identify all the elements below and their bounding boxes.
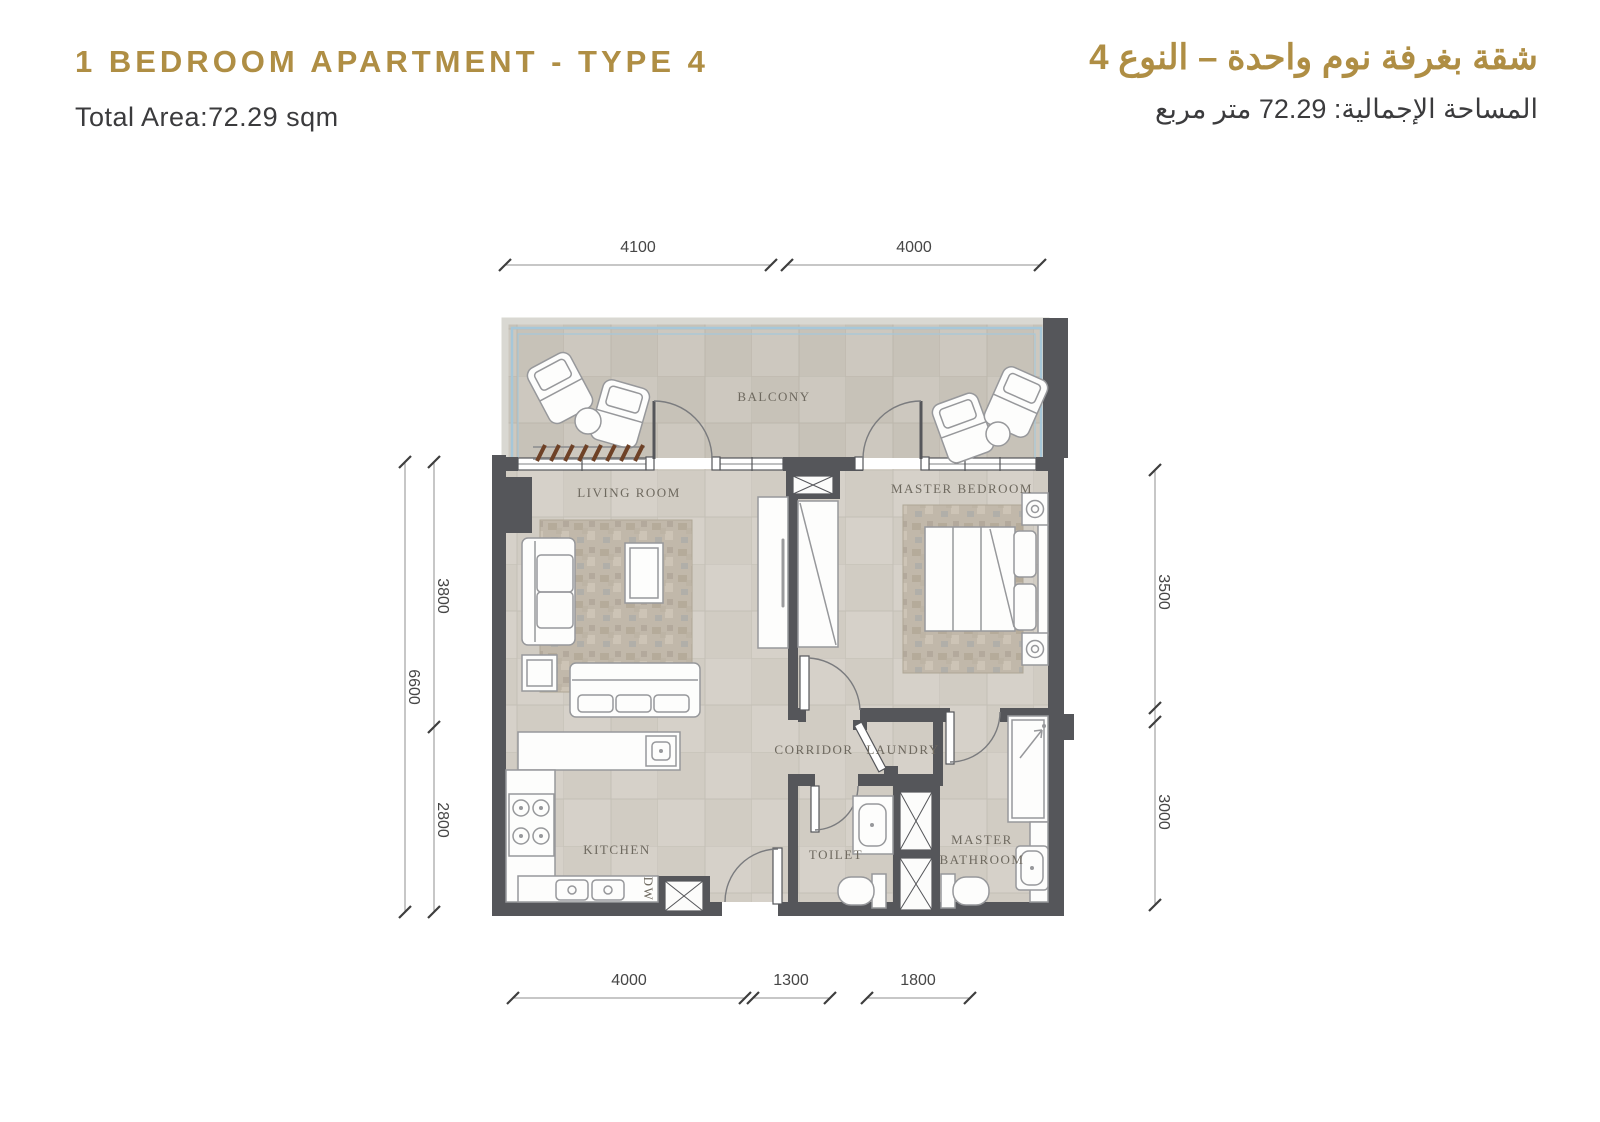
label-master-bathroom-2: BATHROOM [940, 852, 1025, 867]
dim-left-outer: 6600 [405, 669, 422, 705]
side-table-round [575, 408, 601, 434]
pillow [1014, 531, 1036, 577]
dimension-right: 3500 3000 [1149, 464, 1172, 911]
label-living-room: LIVING ROOM [577, 485, 681, 500]
dim-bottom-bathroom: 1800 [900, 972, 936, 989]
washer-dryer [665, 881, 703, 911]
dim-left-upper: 3800 [434, 578, 451, 614]
toilet-wc [838, 874, 886, 908]
dim-right-upper: 3500 [1155, 574, 1172, 610]
dim-bottom-kitchen: 4000 [611, 972, 647, 989]
kitchen-peninsula [518, 732, 680, 770]
floor-plan-page: 1 BEDROOM APARTMENT - TYPE 4 Total Area:… [0, 0, 1600, 1122]
dimension-bottom: 4000 1300 1800 [507, 972, 976, 1004]
nightstand [1022, 493, 1048, 525]
shaft-upper [900, 792, 932, 850]
sofa-three-seat [570, 663, 700, 717]
bathroom-wc [941, 874, 989, 908]
headboard [1038, 523, 1048, 635]
label-master-bedroom: MASTER BEDROOM [891, 481, 1033, 496]
side-table-round [986, 422, 1010, 446]
dim-left-lower: 2800 [434, 802, 451, 838]
dishwasher-label: DW [641, 877, 656, 902]
sofa-two-seat [522, 538, 575, 645]
nightstand [1022, 633, 1048, 665]
dim-top-left: 4100 [620, 239, 656, 256]
pillow [1014, 584, 1036, 630]
label-laundry: LAUNDRY [866, 742, 939, 757]
label-master-bathroom-1: MASTER [951, 832, 1013, 847]
floor-plan-drawing: DW [0, 0, 1600, 1122]
dim-right-lower: 3000 [1155, 794, 1172, 830]
label-balcony: BALCONY [737, 389, 810, 404]
dim-top-right: 4000 [896, 239, 932, 256]
dimension-left: 6600 3800 2800 [399, 456, 451, 918]
coffee-table [625, 543, 663, 603]
label-kitchen: KITCHEN [583, 842, 651, 857]
label-toilet: TOILET [809, 847, 863, 862]
tv-unit [758, 497, 788, 648]
shaft-central [793, 476, 833, 494]
wardrobe [798, 501, 838, 647]
dimension-top: 4100 4000 [499, 239, 1046, 271]
label-corridor: CORRIDOR [774, 742, 853, 757]
dim-bottom-toilet: 1300 [773, 972, 809, 989]
shaft-lower [900, 858, 932, 910]
side-table [522, 655, 557, 691]
shower [1008, 716, 1048, 822]
toilet-vanity [853, 796, 893, 854]
